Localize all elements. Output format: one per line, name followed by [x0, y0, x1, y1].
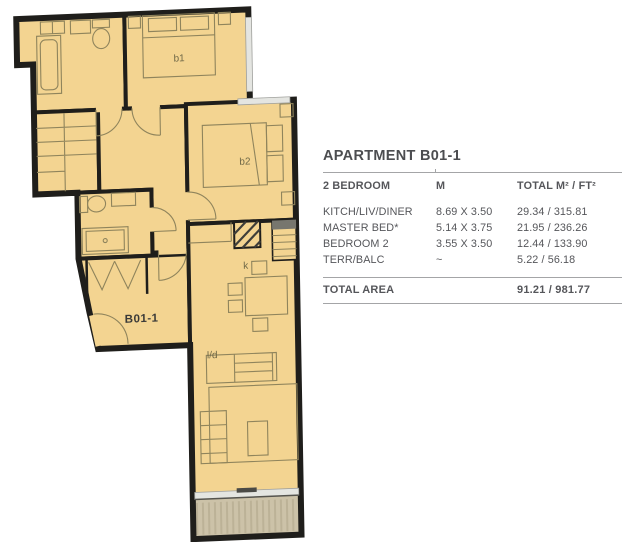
- brochure-page: b1 b2 k l/d B01-1 APARTMENT B01-1 2 BEDR…: [0, 0, 635, 542]
- dimensions-cell: 3.55 X 3.50: [436, 236, 517, 252]
- total-row: TOTAL AREA 91.21 / 981.77: [323, 284, 622, 296]
- dimensions-cell: 5.14 X 3.75: [436, 220, 517, 236]
- room-name-cell: MASTER BED*: [323, 220, 436, 236]
- bedroom1-window: [245, 17, 252, 91]
- room-name-cell: KITCH/LIV/DINER: [323, 204, 436, 220]
- total-value: 91.21 / 981.77: [517, 284, 622, 296]
- apartment-info-panel: APARTMENT B01-1 2 BEDROOM M TOTAL M² / F…: [323, 148, 622, 304]
- bedroom1-label: b1: [173, 53, 185, 64]
- floor-plan: b1 b2 k l/d B01-1: [0, 0, 320, 542]
- area-cell: 29.34 / 315.81: [517, 204, 622, 220]
- panel-title: APARTMENT B01-1: [323, 148, 622, 164]
- utility-unit-icon: [272, 220, 297, 261]
- total-label: TOTAL AREA: [323, 284, 436, 296]
- bedroom2-label: b2: [239, 156, 251, 167]
- duct-shaft-icon: [234, 221, 260, 248]
- dimensions-cell: ~: [436, 252, 517, 268]
- header-total-area: TOTAL M² / FT²: [517, 180, 622, 192]
- header-room-type: 2 BEDROOM: [323, 180, 436, 192]
- apartment-number-label: B01-1: [125, 312, 159, 325]
- terrace-door-step: [237, 487, 257, 492]
- dimensions-cell: 8.69 X 3.50: [436, 204, 517, 220]
- living-dining-label: l/d: [207, 350, 218, 361]
- room-name-cell: BEDROOM 2: [323, 236, 436, 252]
- table-header: 2 BEDROOM M TOTAL M² / FT²: [323, 180, 622, 192]
- area-cell: 21.95 / 236.26: [517, 220, 622, 236]
- rule-top: [323, 172, 622, 173]
- rule-bottom: [323, 303, 622, 304]
- total-spacer: [436, 284, 517, 296]
- rule-tick: [435, 169, 436, 173]
- closet-floor: [34, 110, 99, 195]
- area-cell: 12.44 / 133.90: [517, 236, 622, 252]
- header-dimensions: M: [436, 180, 517, 192]
- room-name-cell: TERR/BALC: [323, 252, 436, 268]
- rule-above-total: [323, 277, 622, 278]
- table-body: KITCH/LIV/DINER 8.69 X 3.50 29.34 / 315.…: [323, 204, 622, 268]
- area-cell: 5.22 / 56.18: [517, 252, 622, 268]
